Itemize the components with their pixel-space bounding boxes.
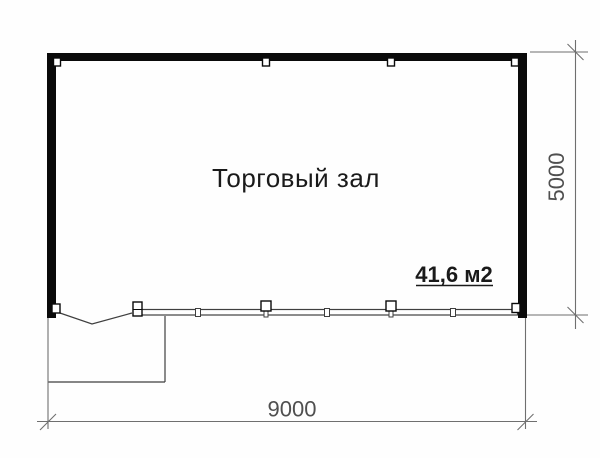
window-post-marker (261, 301, 271, 311)
window-post-tick (389, 311, 393, 317)
window-mullion (196, 309, 201, 317)
column-marker (52, 304, 60, 313)
door-group (57, 312, 132, 324)
dimension-lines (37, 40, 588, 430)
wall-top (47, 53, 527, 61)
column-marker (388, 58, 395, 66)
floor-plan-drawing: Торговый зал 41,6 м2 9000 5000 (0, 0, 600, 458)
column-marker (54, 58, 61, 66)
column-marker (263, 58, 270, 66)
window-band-group (135, 309, 518, 318)
column-marker (512, 304, 520, 313)
wall-left (47, 53, 56, 318)
dimension-height-label: 5000 (544, 153, 569, 202)
window-mullion (451, 309, 456, 317)
dimension-width-label: 9000 (268, 397, 317, 422)
window-post-tick (264, 311, 268, 317)
door-swing-line (57, 312, 132, 324)
room-label: Торговый зал (212, 163, 380, 193)
floor-plan: Торговый зал 41,6 м2 9000 5000 (0, 0, 600, 458)
porch-group (48, 316, 165, 382)
window-post-marker (386, 301, 396, 311)
area-label: 41,6 м2 (415, 262, 492, 287)
wall-right (518, 53, 527, 318)
window-mullion (325, 309, 330, 317)
column-marker (512, 58, 519, 66)
